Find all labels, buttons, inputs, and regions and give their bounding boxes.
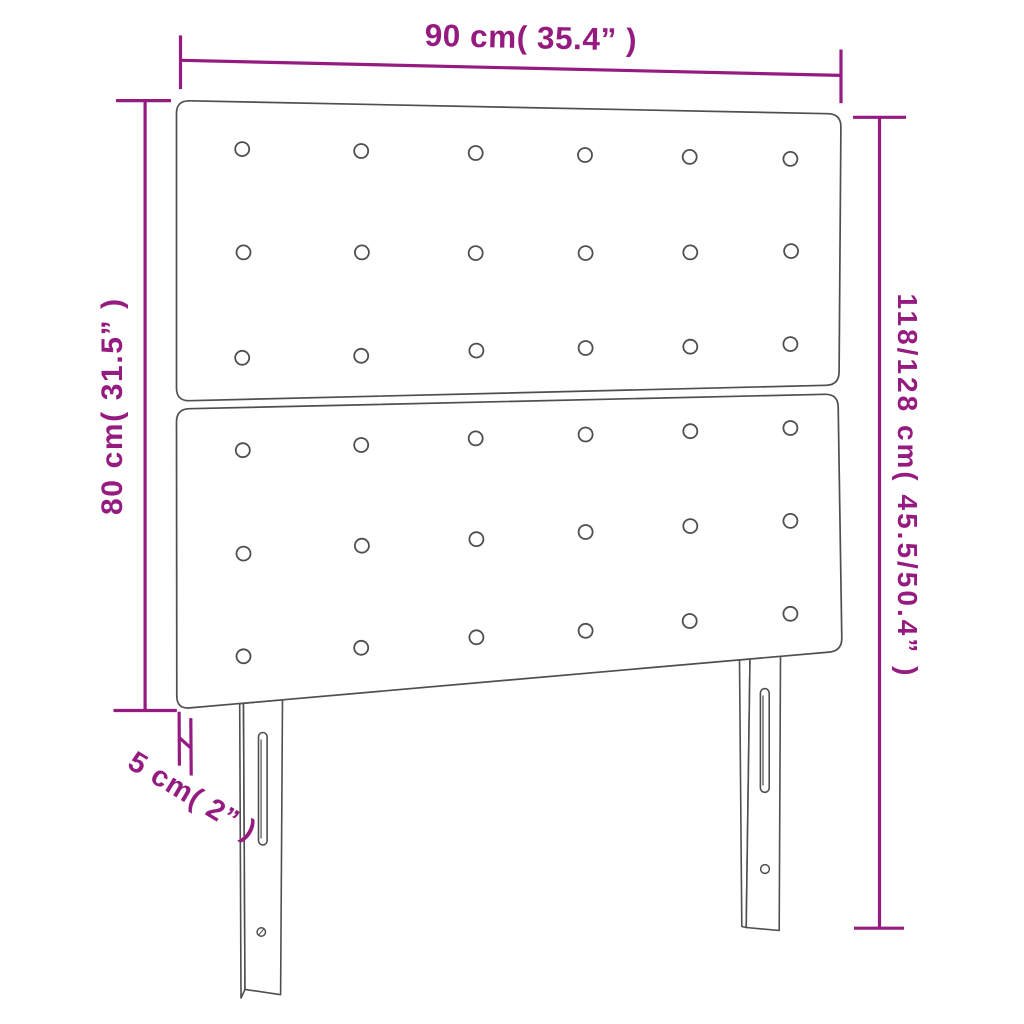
svg-text:90 cm( 35.4” ): 90 cm( 35.4” ) bbox=[424, 17, 637, 58]
svg-text:118/128 cm( 45.5/50.4” ): 118/128 cm( 45.5/50.4” ) bbox=[892, 294, 923, 679]
svg-text:80 cm( 31.5” ): 80 cm( 31.5” ) bbox=[96, 297, 129, 515]
